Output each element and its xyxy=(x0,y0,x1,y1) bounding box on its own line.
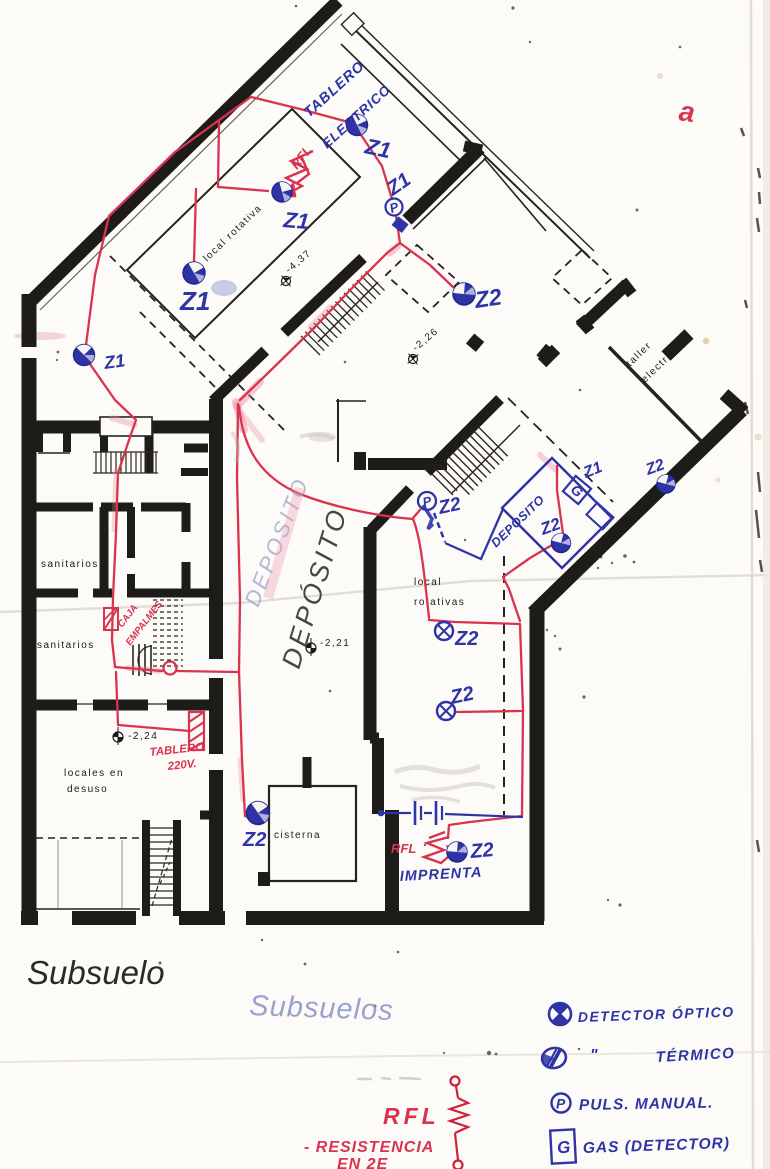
svg-text:cisterna: cisterna xyxy=(274,830,321,841)
svg-text:sanitarios: sanitarios xyxy=(37,640,95,651)
svg-text:P: P xyxy=(556,1096,566,1112)
svg-text:RFL: RFL xyxy=(383,1103,440,1129)
svg-text:Z1: Z1 xyxy=(179,286,210,316)
svg-text:Z2: Z2 xyxy=(242,829,266,851)
svg-text:Z1: Z1 xyxy=(282,207,311,234)
svg-text:Z2: Z2 xyxy=(472,283,503,313)
svg-text:-2,24: -2,24 xyxy=(128,731,158,742)
svg-text:local: local xyxy=(414,577,442,588)
svg-text:sanitarios: sanitarios xyxy=(41,559,99,570)
svg-text:Z2: Z2 xyxy=(469,839,495,863)
svg-text:Z2: Z2 xyxy=(454,628,478,650)
svg-text:-2,21: -2,21 xyxy=(320,638,350,649)
svg-text:desuso: desuso xyxy=(67,784,108,795)
svg-text:Subsuelo: Subsuelo xyxy=(27,954,165,991)
svg-text:": " xyxy=(590,1047,598,1064)
svg-text:Z1: Z1 xyxy=(102,350,127,373)
svg-text:RFL: RFL xyxy=(391,841,416,856)
svg-text:- RESISTENCIA: - RESISTENCIA xyxy=(304,1139,434,1156)
svg-text:EN 2E: EN 2E xyxy=(337,1156,389,1169)
svg-text:locales en: locales en xyxy=(64,768,124,779)
svg-text:Subsuelos: Subsuelos xyxy=(249,990,394,1027)
svg-text:rotativas: rotativas xyxy=(414,597,465,608)
svg-text:G: G xyxy=(557,1138,571,1158)
svg-text:PULS. MANUAL.: PULS. MANUAL. xyxy=(579,1095,714,1114)
